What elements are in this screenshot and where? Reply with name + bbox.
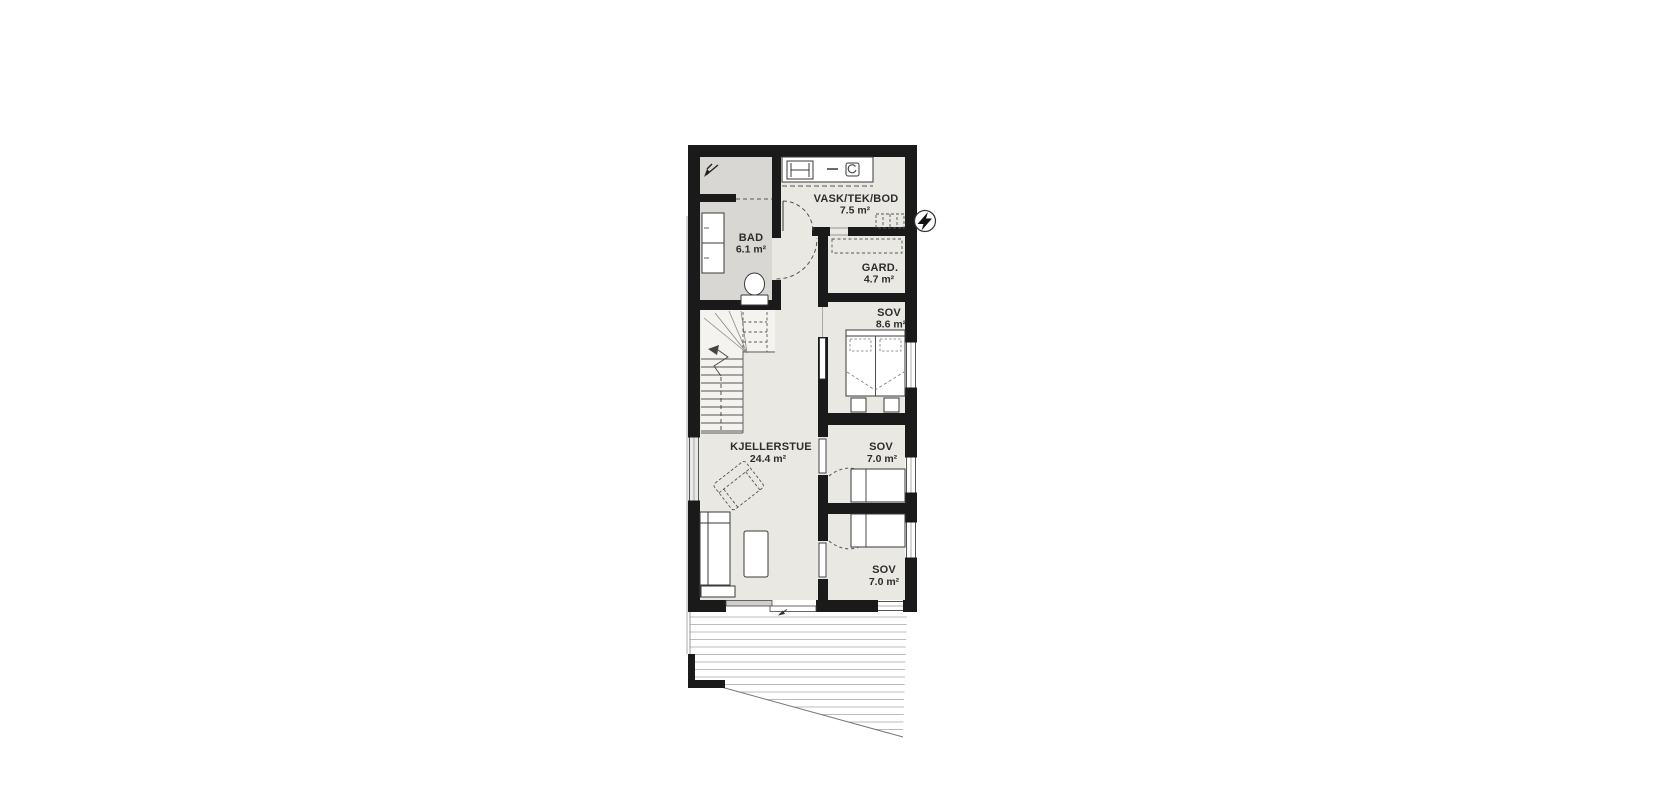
wall-right-1 — [905, 157, 917, 340]
coffee-table — [744, 531, 768, 577]
vanity-cabinet — [702, 213, 724, 273]
bed-single-1 — [851, 469, 905, 502]
wall-top — [688, 145, 917, 157]
wall-sov-left-a — [818, 302, 828, 307]
bed-single-2 — [851, 514, 905, 547]
wall-right-2 — [905, 390, 917, 455]
room-area-sov-main: 8.6 m² — [876, 319, 907, 331]
room-area-sov-mid: 7.0 m² — [867, 453, 898, 465]
wall-bottom-3 — [903, 600, 917, 612]
room-area-gard: 4.7 m² — [864, 274, 895, 286]
wall-gard-sov — [818, 293, 905, 302]
deck-corner-wall-v — [688, 654, 695, 688]
wall-sov86-sov1 — [818, 413, 905, 425]
wall-left-upper — [688, 157, 700, 435]
window-sov-mid — [905, 455, 917, 495]
electric-meter-icon — [915, 211, 936, 232]
deck-edge-diagonal — [723, 688, 903, 738]
room-label-sov-bottom: SOV — [872, 564, 896, 576]
wall-vask-bottom-b — [848, 227, 905, 236]
floor-plan-drawing: BAD 6.1 m² VASK/TEK/BOD 7.5 m² GARD. 4.7… — [0, 0, 1670, 800]
wall-bottom-2 — [816, 600, 878, 612]
room-label-vask: VASK/TEK/BOD — [814, 193, 899, 205]
room-label-bad: BAD — [739, 232, 763, 244]
wall-right-3 — [905, 495, 917, 520]
room-area-bad: 6.1 m² — [736, 244, 767, 256]
room-area-kjellerstue: 24.4 m² — [750, 453, 787, 465]
floor-plan-page: BAD 6.1 m² VASK/TEK/BOD 7.5 m² GARD. 4.7… — [0, 0, 1670, 800]
room-area-vask: 7.5 m² — [840, 205, 871, 217]
room-label-sov-main: SOV — [877, 307, 901, 319]
room-label-kjellerstue: KJELLERSTUE — [730, 441, 812, 453]
room-label-gard: GARD. — [862, 262, 898, 274]
wall-sov1-sov2 — [828, 503, 905, 514]
wall-bottom-1 — [688, 600, 726, 612]
window-sov-bottom-right — [905, 520, 917, 560]
wall-right-4 — [905, 560, 917, 600]
room-label-sov-mid: SOV — [869, 441, 893, 453]
deck-boards — [690, 617, 907, 737]
wall-bad-right-upper — [772, 157, 781, 238]
wall-left-lower — [688, 503, 700, 612]
sofa — [700, 512, 735, 597]
wall-vask-bottom-a — [812, 227, 830, 236]
room-area-sov-bottom: 7.0 m² — [869, 576, 900, 588]
window-kjellerstue-left — [688, 435, 700, 503]
wall-kj-sov-a — [818, 425, 828, 437]
nightstand-right — [884, 398, 899, 412]
wall-kj-sov-c — [818, 579, 828, 600]
wall-shower-stub — [700, 194, 736, 202]
sliding-door-kjellerstue — [726, 601, 816, 616]
bed-double — [846, 330, 905, 396]
window-sov-bottom-wall — [878, 600, 903, 612]
window-sov-main — [905, 340, 917, 390]
nightstand-left — [851, 398, 866, 412]
wall-kj-sov-b — [818, 475, 828, 541]
wall-gard-left — [818, 236, 828, 293]
